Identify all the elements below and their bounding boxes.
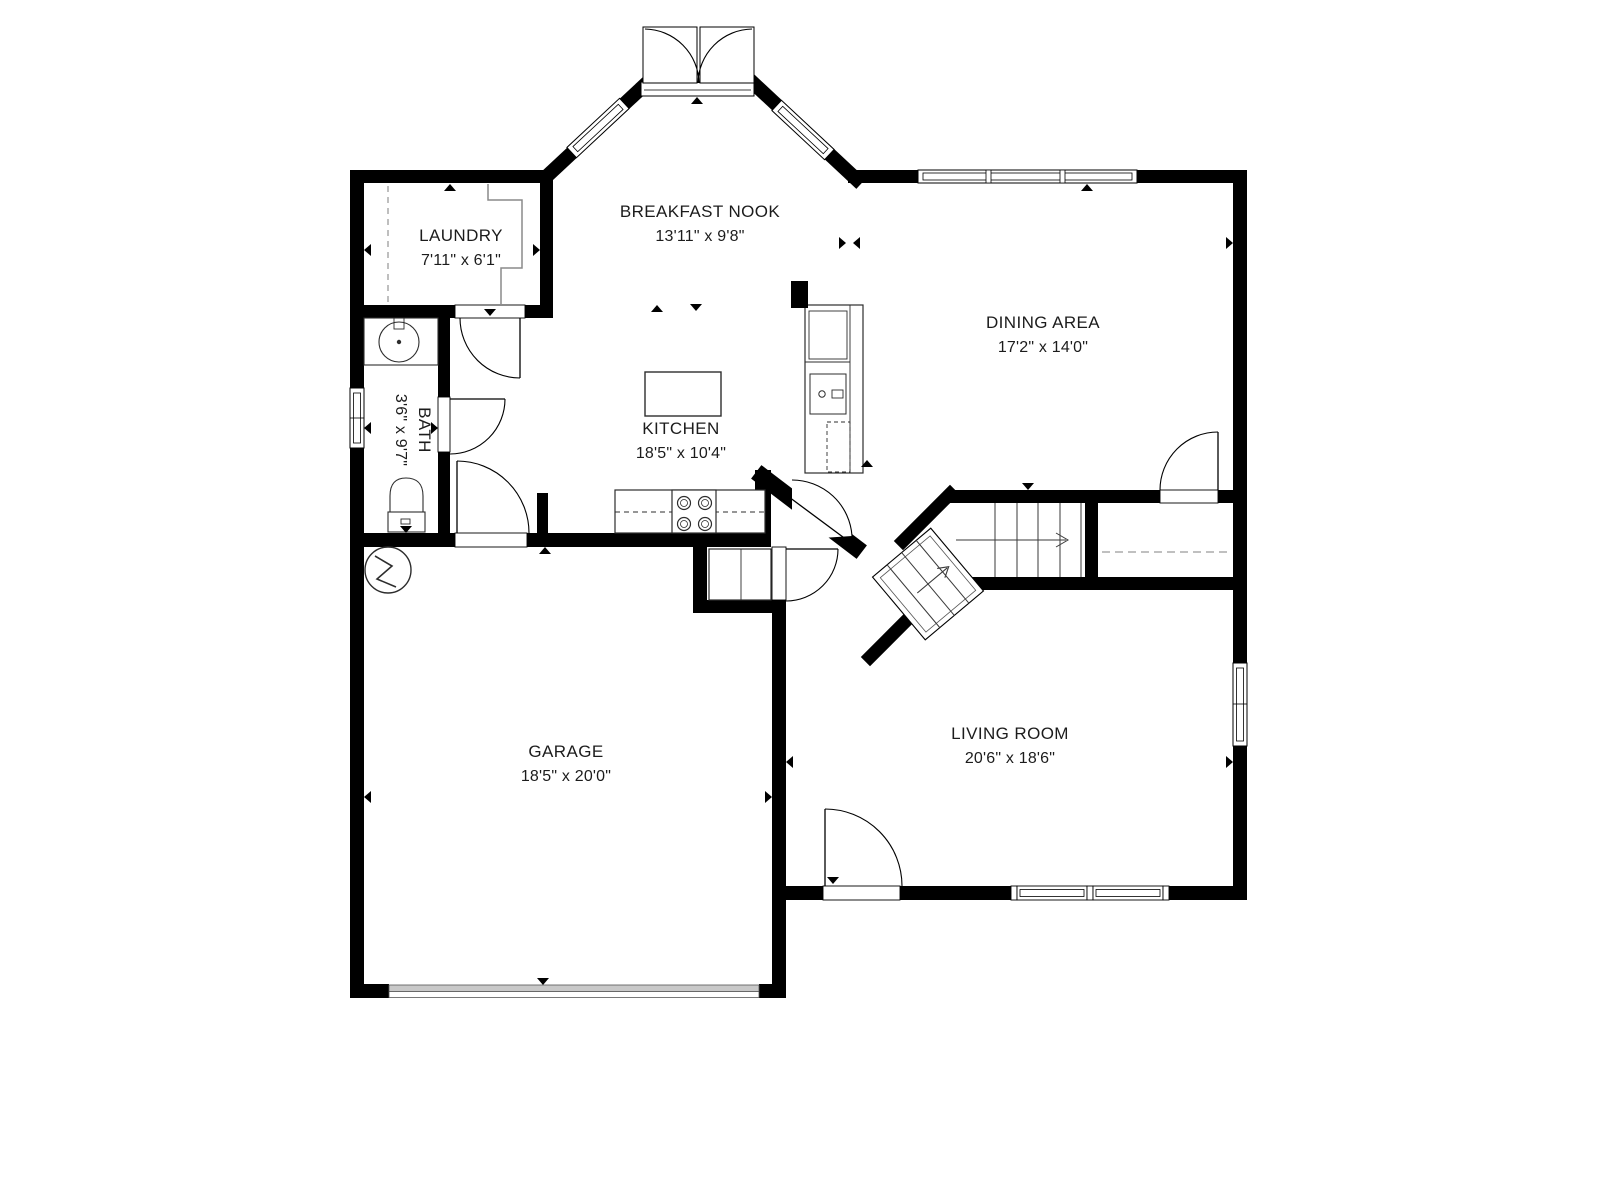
dims-breakfast-nook: 13'11" x 9'8"	[655, 228, 744, 245]
stair-winder-flight	[873, 528, 984, 640]
window-bay-left	[567, 98, 629, 157]
garage-vehicle-door	[389, 985, 759, 998]
window-bath	[350, 388, 364, 448]
wall-garage-bottom-left	[350, 984, 389, 998]
door-front-entry	[823, 809, 902, 900]
toilet-icon	[388, 478, 425, 532]
wall-arrow-marker	[364, 244, 371, 256]
wall-arrow-marker	[1081, 184, 1093, 191]
french-door-threshold	[641, 82, 754, 96]
bath-sink-icon	[364, 318, 438, 365]
label-bath-rotated: BATH 3'6" x 9'7"	[392, 394, 434, 466]
label-garage: GARAGE	[528, 742, 603, 761]
kitchen-counter-peninsula	[791, 281, 863, 473]
door-bath	[438, 397, 505, 454]
door-entry-closet	[772, 547, 838, 601]
kitchen-counter-bottom	[615, 490, 765, 533]
floor-plan: BREAKFAST NOOK 13'11" x 9'8" DINING AREA…	[0, 0, 1600, 1200]
french-doors-nook	[641, 27, 754, 96]
window-bay-right	[772, 100, 834, 159]
window-dining-top	[918, 170, 1137, 183]
wall-arrow-marker	[444, 184, 456, 191]
wall-exterior-left	[350, 170, 364, 998]
dims-laundry: 7'11" x 6'1"	[421, 252, 501, 269]
wall-arrow-marker	[651, 305, 663, 312]
wall-arrow-marker	[827, 877, 839, 884]
wall-arrow-marker	[1022, 483, 1034, 490]
wall-garage-top-b-kitchen-bottom	[527, 533, 757, 547]
wall-bath-right-upper	[438, 318, 450, 397]
wall-arrow-marker	[537, 978, 549, 985]
window-living-bottom	[1011, 886, 1169, 900]
wall-arrow-marker	[839, 237, 846, 249]
dims-garage: 18'5" x 20'0"	[521, 768, 611, 785]
wall-arrow-marker	[691, 97, 703, 104]
wall-arrow-marker	[765, 791, 772, 803]
water-heater-icon	[365, 547, 411, 593]
dims-bath: 3'6" x 9'7"	[392, 394, 409, 466]
label-dining-area: DINING AREA	[986, 313, 1100, 332]
wall-arrow-marker	[786, 756, 793, 768]
peninsula-wall-stub	[791, 281, 808, 308]
stair-straight-flight	[956, 503, 1081, 577]
label-breakfast-nook: BREAKFAST NOOK	[620, 202, 780, 221]
wall-laundry-bottom-a	[350, 305, 455, 318]
wall-kitchen-hall-stub	[537, 493, 548, 533]
wall-arrow-marker	[1226, 756, 1233, 768]
door-pantry-diagonal	[789, 480, 852, 543]
wall-arrow-marker	[539, 547, 551, 554]
label-laundry: LAUNDRY	[419, 226, 503, 245]
label-kitchen: KITCHEN	[642, 419, 719, 438]
stove-icon	[672, 490, 716, 533]
dims-kitchen: 18'5" x 10'4"	[636, 445, 726, 462]
wall-arrow-marker	[1226, 237, 1233, 249]
wall-stairhall-top-b	[1218, 490, 1247, 503]
wall-arrow-marker	[690, 304, 702, 311]
wall-arrow-marker	[364, 791, 371, 803]
wall-stair-divider	[1085, 490, 1098, 590]
door-dining-hall	[1160, 432, 1218, 503]
dims-dining-area: 17'2" x 14'0"	[998, 339, 1088, 356]
floor-plan-page: BREAKFAST NOOK 13'11" x 9'8" DINING AREA…	[0, 0, 1600, 1200]
wall-laundry-top	[350, 170, 546, 183]
wall-arrow-marker	[853, 237, 860, 249]
wall-laundry-right	[540, 170, 553, 318]
door-garage-hall	[455, 461, 529, 547]
wall-bath-right-lower	[438, 452, 450, 547]
entry-closet	[709, 549, 771, 600]
kitchen-island	[645, 372, 721, 416]
label-bath: BATH	[415, 407, 434, 453]
wall-stairhall-top-a	[948, 490, 1160, 503]
label-living-room: LIVING ROOM	[951, 724, 1069, 743]
wall-arrow-marker	[533, 244, 540, 256]
dims-living-room: 20'6" x 18'6"	[965, 750, 1055, 767]
wall-exterior-right	[1233, 170, 1247, 900]
wall-arrow-marker	[364, 422, 371, 434]
wall-entry-left	[772, 600, 786, 998]
window-living-right	[1233, 663, 1247, 746]
